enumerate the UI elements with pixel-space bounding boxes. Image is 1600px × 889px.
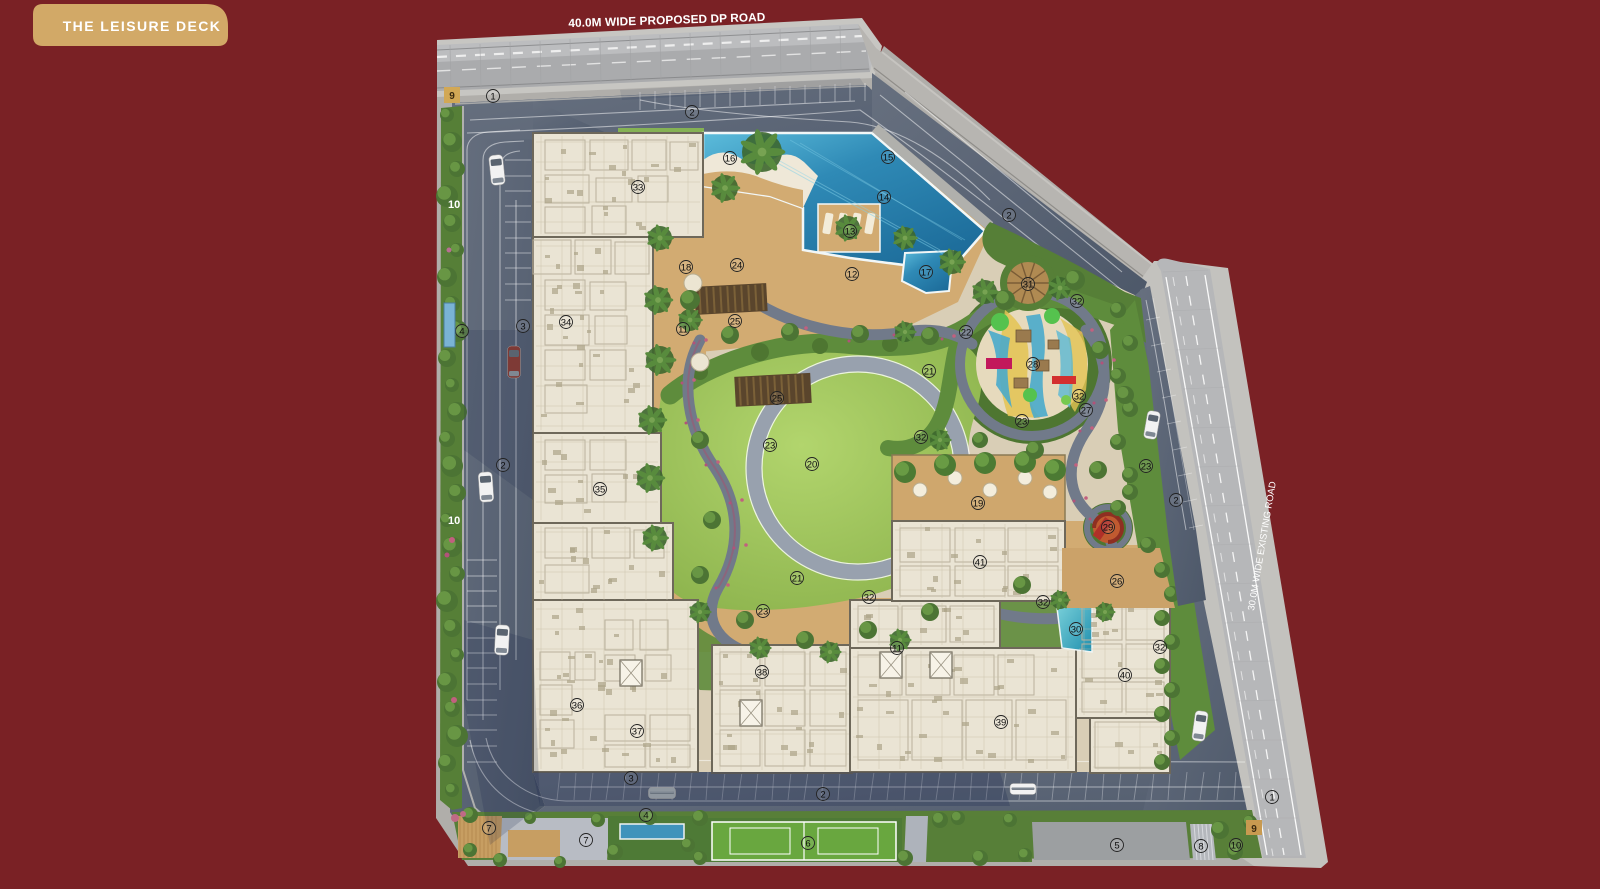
svg-text:32: 32 (916, 432, 927, 443)
svg-text:32: 32 (864, 592, 875, 603)
svg-text:39: 39 (996, 717, 1007, 728)
svg-text:2: 2 (500, 460, 505, 471)
svg-text:25: 25 (772, 393, 783, 404)
svg-text:2: 2 (1006, 210, 1011, 221)
svg-text:13: 13 (845, 226, 856, 237)
svg-text:34: 34 (561, 317, 572, 328)
svg-text:10: 10 (448, 199, 460, 211)
svg-text:22: 22 (961, 327, 972, 338)
svg-text:32: 32 (1038, 597, 1049, 608)
svg-text:15: 15 (883, 152, 894, 163)
svg-text:2: 2 (689, 107, 694, 118)
svg-text:35: 35 (595, 484, 606, 495)
svg-text:17: 17 (921, 267, 932, 278)
svg-text:41: 41 (975, 557, 986, 568)
svg-text:11: 11 (678, 324, 688, 335)
svg-text:4: 4 (643, 810, 648, 821)
svg-text:29: 29 (1103, 522, 1114, 533)
svg-text:2: 2 (820, 789, 825, 800)
svg-text:19: 19 (973, 498, 984, 509)
svg-text:28: 28 (1028, 359, 1039, 370)
svg-text:32: 32 (1074, 391, 1085, 402)
svg-text:12: 12 (847, 269, 858, 280)
svg-text:8: 8 (1198, 841, 1203, 852)
svg-text:3: 3 (628, 773, 633, 784)
svg-text:20: 20 (807, 459, 818, 470)
svg-text:10: 10 (448, 515, 460, 527)
svg-text:26: 26 (1112, 576, 1123, 587)
svg-text:18: 18 (681, 262, 692, 273)
svg-text:7: 7 (486, 823, 491, 834)
svg-text:38: 38 (757, 667, 768, 678)
svg-text:24: 24 (732, 260, 743, 271)
svg-text:23: 23 (1141, 461, 1152, 472)
svg-text:32: 32 (1155, 642, 1166, 653)
svg-text:21: 21 (792, 573, 803, 584)
svg-text:23: 23 (765, 440, 776, 451)
svg-text:4: 4 (459, 326, 464, 337)
svg-text:16: 16 (725, 153, 736, 164)
svg-text:11: 11 (892, 643, 902, 654)
svg-text:23: 23 (758, 606, 769, 617)
svg-text:36: 36 (572, 700, 583, 711)
svg-text:33: 33 (633, 182, 644, 193)
svg-text:2: 2 (1173, 495, 1178, 506)
svg-text:10: 10 (1231, 840, 1242, 851)
svg-text:21: 21 (924, 366, 935, 377)
svg-text:3: 3 (520, 321, 525, 332)
svg-text:1: 1 (490, 91, 495, 102)
svg-text:40: 40 (1120, 670, 1131, 681)
svg-text:30: 30 (1071, 624, 1082, 635)
svg-text:7: 7 (583, 835, 588, 846)
svg-text:5: 5 (1114, 840, 1119, 851)
svg-text:14: 14 (879, 192, 890, 203)
svg-text:32: 32 (1072, 296, 1083, 307)
svg-text:1: 1 (1269, 792, 1274, 803)
svg-text:6: 6 (805, 838, 810, 849)
svg-text:9: 9 (1251, 824, 1257, 835)
svg-text:THE LEISURE DECK: THE LEISURE DECK (63, 18, 222, 34)
svg-text:31: 31 (1023, 279, 1034, 290)
svg-text:23: 23 (1017, 416, 1028, 427)
svg-text:37: 37 (632, 726, 643, 737)
svg-text:25: 25 (730, 316, 741, 327)
svg-text:27: 27 (1081, 405, 1092, 416)
svg-text:9: 9 (449, 91, 455, 102)
